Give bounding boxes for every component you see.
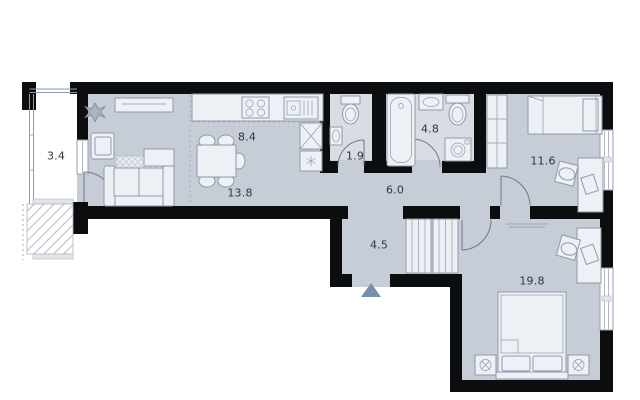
wall-top (70, 82, 613, 94)
wall-bedroom2-left (450, 274, 462, 392)
room-label-entrance-hall: 4.5 (370, 239, 388, 252)
coffee-table-icon (144, 149, 174, 166)
room-label-bedroom-1: 11.6 (530, 155, 555, 168)
closet-icon (406, 219, 431, 273)
balcony-doorway-floor (77, 172, 88, 204)
single-bed-icon (528, 96, 602, 134)
room-label-balcony: 3.4 (47, 150, 65, 163)
closet-icon (433, 219, 458, 273)
balcony-hatch-icon (23, 199, 73, 260)
pillow-icon (533, 356, 562, 371)
floor-plan-drawing (0, 0, 640, 400)
room-label-bedroom-2: 19.8 (519, 275, 544, 288)
room-label-living-room: 13.8 (227, 187, 252, 200)
nightstand-icon (475, 355, 496, 375)
bathtub-icon (387, 94, 415, 166)
wall-wc-bath (372, 92, 386, 167)
wall-living-bottom (72, 206, 348, 219)
window-balcony-living (77, 140, 88, 174)
wall-bottom-right (450, 380, 613, 392)
washing-machine-icon (445, 138, 471, 161)
tv-stand-icon (115, 98, 173, 112)
tall-cabinet-icon (300, 123, 322, 149)
room-label-wc: 1.9 (346, 150, 364, 163)
kitchen-sink-icon (284, 97, 318, 119)
wall-above-closets (403, 206, 460, 219)
window-bedroom2 (600, 268, 613, 330)
kitchen-counter-icon (192, 94, 323, 121)
sofa-icon (104, 166, 174, 206)
room-label-bathroom: 4.8 (421, 123, 439, 136)
desk-icon (577, 228, 601, 283)
wardrobe-icon (487, 95, 507, 168)
double-bed-icon (496, 292, 568, 379)
wall-stub-bedroom1 (490, 206, 500, 219)
fridge-icon (300, 151, 322, 171)
armchair-icon (91, 133, 114, 159)
floor-plan: 3.4 8.4 13.8 1.9 4.8 6.0 11.6 4.5 19.8 (0, 0, 640, 400)
stove-icon (242, 97, 269, 118)
bathroom-sink-icon (419, 94, 443, 110)
room-label-hallway: 6.0 (386, 184, 404, 197)
nightstand-icon (568, 355, 589, 375)
washbasin-icon (330, 127, 342, 145)
room-label-kitchen: 8.4 (238, 131, 256, 144)
desk-icon (578, 158, 603, 212)
toilet-icon (341, 96, 360, 124)
wall-wc-bottom-left (320, 161, 338, 173)
wall-entrance-bottom-right (390, 274, 462, 287)
wall-entrance-bottom-left (330, 274, 352, 287)
pillow-icon (502, 356, 530, 371)
wall-bath-bedroom1 (474, 92, 486, 173)
